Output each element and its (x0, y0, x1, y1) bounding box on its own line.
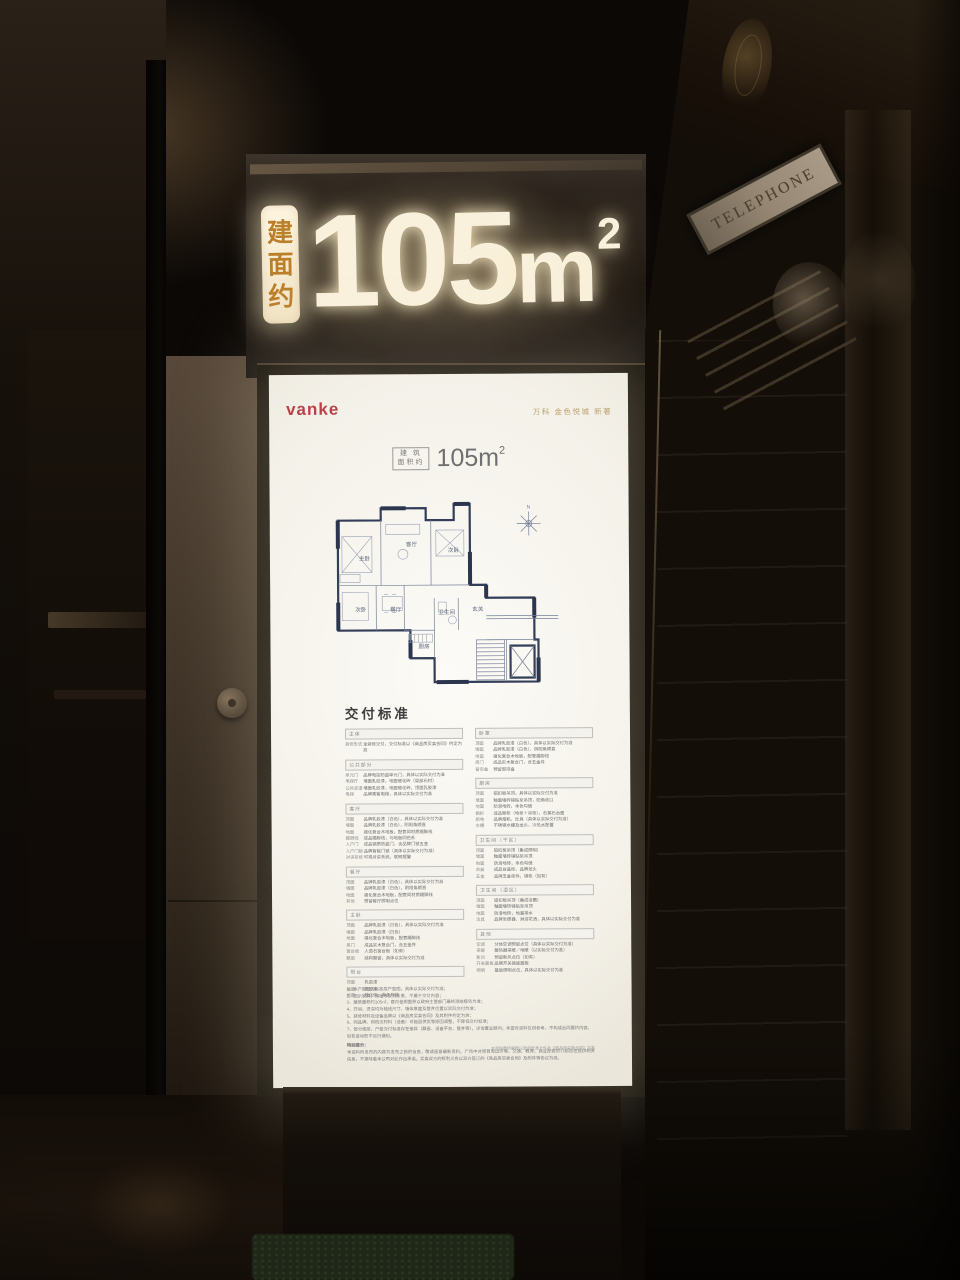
delivery-row: 窗帘盒预留窗帘盒 (475, 766, 593, 773)
delivery-section-title: 厨房 (475, 777, 593, 789)
delivery-section: 卫生间（湿区）顶面铝扣板吊顶（集成浴霸）墙面釉面墙砖铺贴至吊顶地面防滑地砖，地漏… (476, 884, 594, 923)
shelf-highlight-dim (54, 690, 146, 699)
delivery-section: 客厅顶面品牌乳胶漆（白色），具体以实际交付为准墙面品牌乳胶漆（白色），阴阳角顺直… (345, 803, 463, 862)
delivery-section: 其他空调分体空调预留点位（具体以实际交付为准）采暖散热器采暖／地暖（以实际交付为… (476, 928, 594, 974)
floorplan-drawing: N 主卧客厅次卧次卧餐厅厨房卫生间玄关 (326, 489, 563, 692)
delivery-section: 主卧顶面品牌乳胶漆（白色），具体以实际交付为准墙面品牌乳胶漆（白色）地面强化复合… (346, 909, 464, 961)
telephone-sign-label: TELEPHONE (709, 164, 819, 234)
delivery-section-title: 公共部分 (345, 759, 463, 771)
room-label: 餐厅 (390, 605, 402, 613)
area-line: 建 筑 面积约 105m 2 (269, 445, 628, 472)
delivery-row: 其他预留餐厅照明点位 (346, 898, 464, 905)
delivery-standard-table: 主体装修形式全装修交付，交付标准以《商品房买卖合同》约定为准公共部分单元门品牌电… (345, 727, 595, 1004)
area-unit: m (515, 218, 597, 325)
delivery-row: 照明基础照明点位，具体以实际交付为准 (476, 967, 594, 974)
compass-north-label: N (527, 505, 531, 511)
room-label: 卫生间 (438, 608, 455, 616)
shelf-highlight (48, 612, 148, 628)
booth-pillar-capital (841, 230, 915, 340)
dimmer-knob (217, 688, 247, 718)
delivery-row: 水槽不锈钢水槽及龙头，冷热水配置 (476, 823, 594, 830)
artificial-grass (252, 1234, 514, 1280)
wall-seam (168, 900, 270, 902)
delivery-section: 卧室顶面品牌乳胶漆（白色），具体以实际交付为准墙面品牌乳胶漆（白色），阴阳角顺直… (475, 727, 593, 773)
room-label: 玄关 (472, 605, 484, 613)
delivery-row: 飘窗结构飘窗，具体以实际交付为准 (346, 955, 464, 962)
telephone-sign: TELEPHONE (686, 143, 842, 255)
showroom-scene: 建 面 约 105 m 2 vanke 万科 金色悦城 新著 建 筑 面积约 1… (0, 0, 960, 1280)
area-value: 105 (306, 188, 517, 331)
delivery-section: 公共部分单元门品牌电控防盗单元门，具体以实际交付为准电梯厅墙面乳胶漆，地面玻化砖… (345, 759, 463, 798)
compass-icon: N (517, 504, 541, 535)
delivery-section-title: 卫生间（干区） (476, 834, 594, 846)
delivery-section-title: 客厅 (345, 803, 463, 815)
area-label-line2: 面积约 (397, 459, 424, 468)
room-label: 客厅 (406, 540, 418, 548)
vanke-logo: vanke (286, 400, 339, 420)
doorway-gap (146, 60, 166, 1130)
delivery-section: 卫生间（干区）顶面铝扣板吊顶（集成照明）墙面釉面墙砖铺贴至吊顶地面防滑地砖，本色… (476, 834, 594, 880)
floorplan-poster: vanke 万科 金色悦城 新著 建 筑 面积约 105m 2 (269, 373, 632, 1088)
prefix-char: 面 (267, 251, 294, 278)
delivery-section-title: 卧室 (475, 727, 593, 739)
telephone-booth: TELEPHONE (645, 0, 960, 1280)
poster-area-superscript: 2 (499, 444, 505, 456)
delivery-row: 洁具品牌坐便器、淋浴花洒，具体以实际交付为准 (476, 916, 594, 923)
delivery-column-right: 卧室顶面品牌乳胶漆（白色），具体以实际交付为准墙面品牌乳胶漆（白色），阴阳角顺直… (475, 727, 595, 1003)
delivery-section: 主体装修形式全装修交付，交付标准以《商品房买卖合同》约定为准 (345, 728, 463, 755)
room-label: 主卧 (359, 554, 371, 562)
delivery-standard-title: 交付标准 (345, 702, 411, 722)
area-prefix-lightbox: 建 面 约 (261, 205, 301, 324)
area-label-line1: 建 筑 (397, 450, 424, 459)
delivery-section-title: 主体 (345, 728, 463, 740)
area-number-sign: 105 m 2 (306, 186, 623, 331)
floor-light-pool (60, 1140, 260, 1270)
prefix-char: 建 (267, 219, 294, 246)
delivery-section-title: 餐厅 (346, 866, 464, 878)
booth-door-panels (657, 340, 847, 1150)
delivery-row: 装修形式全装修交付，交付标准以《商品房买卖合同》约定为准 (345, 741, 463, 755)
poster-area-value: 105m (436, 446, 499, 471)
illuminated-area-sign: 建 面 约 105 m 2 (260, 186, 623, 344)
room-label: 次卧 (448, 546, 460, 554)
delivery-row: 对讲系统可视对讲系统，联网报警 (346, 854, 464, 861)
delivery-section: 厨房顶面铝扣板吊顶，具体以实际交付为准墙面釉面墙砖铺贴至吊顶，阳角收口地面防滑地… (475, 777, 593, 829)
delivery-column-left: 主体装修形式全装修交付，交付标准以《商品房买卖合同》约定为准公共部分单元门品牌电… (345, 728, 465, 1004)
area-superscript: 2 (596, 209, 622, 260)
delivery-row: 五金品牌五金挂件，镜柜（如有） (476, 873, 594, 880)
area-label-box: 建 筑 面积约 (392, 447, 429, 471)
project-title: 万科 金色悦城 新著 (533, 406, 612, 417)
room-label: 厨房 (418, 642, 430, 650)
shelf-unit (28, 330, 148, 940)
delivery-section: 餐厅顶面品牌乳胶漆（白色），具体以实际交付为准墙面品牌乳胶漆（白色），阴阳角顺直… (346, 866, 464, 905)
delivery-section-title: 阳台 (346, 966, 464, 978)
delivery-row: 电梯品牌乘客电梯，具体以实际交付为准 (345, 791, 463, 798)
room-label: 次卧 (355, 606, 367, 614)
booth-bottom-shadow (645, 1030, 960, 1280)
delivery-section-title: 主卧 (346, 909, 464, 921)
delivery-section-title: 卫生间（湿区） (476, 884, 594, 896)
delivery-section-title: 其他 (476, 928, 594, 940)
note-item: 7、部分楼层、户型交付标准存在差异（飘窗、设备平台、管井等），详询置业顾问；本宣… (347, 1025, 595, 1040)
prefix-char: 约 (268, 283, 295, 310)
